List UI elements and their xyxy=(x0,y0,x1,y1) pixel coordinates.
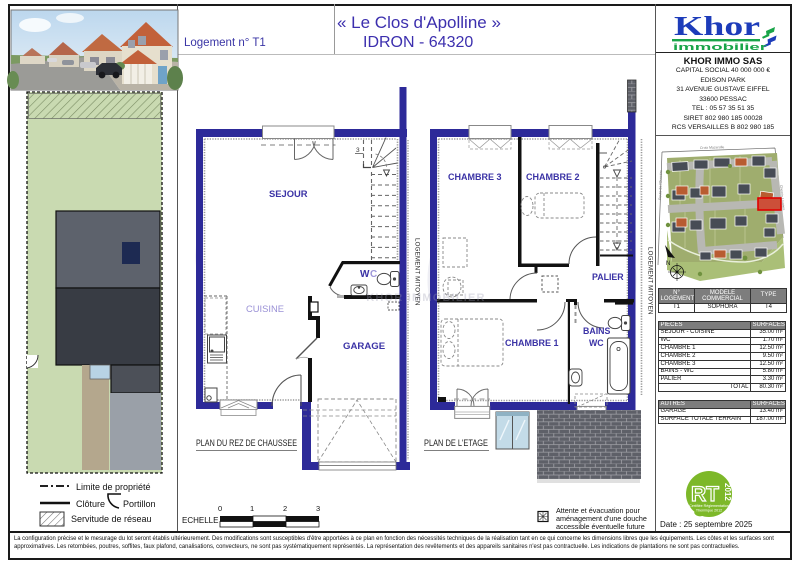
svg-text:SEJOUR: SEJOUR xyxy=(269,188,308,199)
svg-text:C: C xyxy=(370,269,377,280)
svg-text:WC: WC xyxy=(589,338,604,348)
svg-text:Khor: Khor xyxy=(674,11,760,41)
svg-text:Route de l'Oussére: Route de l'Oussére xyxy=(658,170,663,200)
svg-text:GARAGE: GARAGE xyxy=(343,341,386,352)
svg-text:BAINS: BAINS xyxy=(583,326,611,336)
svg-text:2012: 2012 xyxy=(723,483,732,501)
svg-text:CHAMBRE 1: CHAMBRE 1 xyxy=(505,338,559,348)
svg-text:PLAN DE L'ETAGE: PLAN DE L'ETAGE xyxy=(424,438,488,448)
svg-text:Limite de propriété: Limite de propriété xyxy=(76,482,151,492)
svg-text:Certifiée Réglementation: Certifiée Réglementation xyxy=(689,504,729,508)
svg-text:Thermique 2012: Thermique 2012 xyxy=(696,509,722,513)
svg-text:ECHELLE :: ECHELLE : xyxy=(182,516,223,525)
svg-text:KHOR IMMOBILIER: KHOR IMMOBILIER xyxy=(366,292,485,304)
svg-text:Croix Mazerolle: Croix Mazerolle xyxy=(700,145,724,150)
svg-text:3: 3 xyxy=(356,147,360,154)
svg-text:Portillon: Portillon xyxy=(123,499,156,509)
svg-text:Servitude de réseau: Servitude de réseau xyxy=(71,514,152,524)
svg-text:PALIER: PALIER xyxy=(592,272,624,282)
svg-text:CUISINE: CUISINE xyxy=(246,303,284,314)
svg-text:W: W xyxy=(360,269,370,280)
svg-text:PLAN DU REZ DE CHAUSSEE: PLAN DU REZ DE CHAUSSEE xyxy=(196,438,297,448)
svg-text:Clôture: Clôture xyxy=(76,499,105,509)
svg-text:3: 3 xyxy=(316,504,320,513)
svg-text:RT: RT xyxy=(691,483,719,506)
svg-text:accessible éventuelle future: accessible éventuelle future xyxy=(556,522,645,531)
svg-text:CHAMBRE 3: CHAMBRE 3 xyxy=(448,172,502,182)
svg-text:LOGEMENT MITOYEN: LOGEMENT MITOYEN xyxy=(647,247,654,315)
svg-text:2: 2 xyxy=(283,504,287,513)
svg-text:1: 1 xyxy=(250,504,254,513)
svg-text:0: 0 xyxy=(218,504,222,513)
svg-text:N: N xyxy=(666,261,670,267)
svg-text:CHAMBRE 2: CHAMBRE 2 xyxy=(526,172,580,182)
